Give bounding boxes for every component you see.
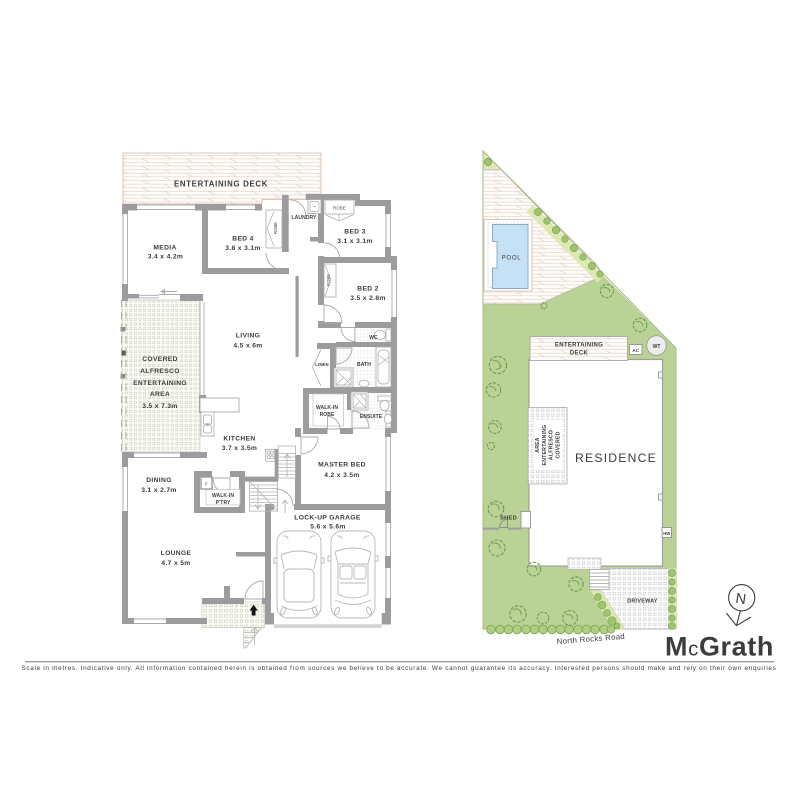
svg-text:KITCHEN: KITCHEN (223, 435, 255, 442)
svg-text:BATH: BATH (357, 362, 371, 368)
svg-text:ROBE: ROBE (326, 274, 331, 286)
svg-text:N: N (734, 591, 747, 608)
svg-text:4.5 x 6m: 4.5 x 6m (233, 343, 262, 350)
svg-text:ENTERTAINING: ENTERTAINING (542, 425, 548, 466)
svg-text:ENTERTAINING: ENTERTAINING (133, 380, 187, 387)
svg-text:DINING: DINING (146, 477, 172, 484)
svg-text:WT: WT (653, 344, 661, 350)
svg-text:4.2 x 3.5m: 4.2 x 3.5m (324, 472, 359, 479)
svg-text:North Rocks Road: North Rocks Road (556, 632, 625, 646)
svg-text:F: F (205, 482, 208, 487)
svg-text:P'TRY: P'TRY (216, 500, 231, 506)
svg-text:BED 2: BED 2 (357, 286, 378, 293)
svg-text:3.5 x 2.8m: 3.5 x 2.8m (350, 295, 385, 302)
svg-text:SHED: SHED (500, 516, 517, 522)
svg-text:ALFRESCO: ALFRESCO (140, 368, 180, 375)
svg-text:Scale in metres. Indicative on: Scale in metres. Indicative only. All in… (21, 665, 776, 672)
svg-text:WALK-IN: WALK-IN (316, 405, 338, 411)
svg-text:McGrath: McGrath (665, 632, 774, 662)
svg-text:LOUNGE: LOUNGE (161, 550, 192, 557)
svg-text:5.6 x 5.6m: 5.6 x 5.6m (310, 524, 345, 531)
svg-text:MASTER BED: MASTER BED (318, 462, 366, 469)
svg-text:ALFRESCO: ALFRESCO (549, 430, 555, 460)
svg-text:AC: AC (632, 348, 639, 353)
svg-text:3.4 x 4.2m: 3.4 x 4.2m (148, 254, 183, 261)
svg-text:HW: HW (663, 531, 670, 536)
svg-text:AREA: AREA (150, 391, 170, 398)
svg-text:ROBE: ROBE (320, 412, 335, 418)
svg-text:WALK-IN: WALK-IN (212, 493, 234, 499)
svg-text:3.1 x 2.7m: 3.1 x 2.7m (141, 487, 176, 494)
svg-text:3.5 x 7.3m: 3.5 x 7.3m (142, 403, 177, 410)
svg-text:LOCK-UP GARAGE: LOCK-UP GARAGE (294, 515, 361, 522)
svg-text:DRIVEWAY: DRIVEWAY (627, 599, 658, 605)
svg-text:ROBE: ROBE (273, 222, 278, 234)
svg-text:LINEN: LINEN (315, 362, 328, 367)
svg-text:3.7 x 3.5m: 3.7 x 3.5m (222, 445, 257, 452)
svg-text:MEDIA: MEDIA (153, 244, 176, 251)
svg-text:ENTERTAINING: ENTERTAINING (555, 343, 603, 349)
svg-text:COVERED: COVERED (142, 356, 178, 363)
svg-text:BED 4: BED 4 (232, 236, 253, 243)
svg-text:3.1 x 3.1m: 3.1 x 3.1m (337, 238, 372, 245)
svg-text:4.7 x 5m: 4.7 x 5m (161, 560, 190, 567)
svg-text:3.8 x 3.1m: 3.8 x 3.1m (225, 245, 260, 252)
svg-text:POOL: POOL (502, 256, 522, 262)
svg-text:ROBE: ROBE (333, 206, 346, 211)
svg-text:BED 3: BED 3 (344, 229, 365, 236)
svg-text:DECK: DECK (570, 351, 589, 357)
svg-text:COVERED: COVERED (555, 431, 561, 458)
svg-text:LAUNDRY: LAUNDRY (292, 215, 318, 221)
svg-text:WC: WC (369, 335, 378, 341)
svg-text:ENSUITE: ENSUITE (360, 414, 383, 420)
svg-text:LIVING: LIVING (236, 333, 260, 340)
svg-text:RESIDENCE: RESIDENCE (575, 451, 657, 465)
svg-text:ENTERTAINING DECK: ENTERTAINING DECK (174, 180, 268, 189)
svg-text:AREA: AREA (535, 437, 541, 453)
